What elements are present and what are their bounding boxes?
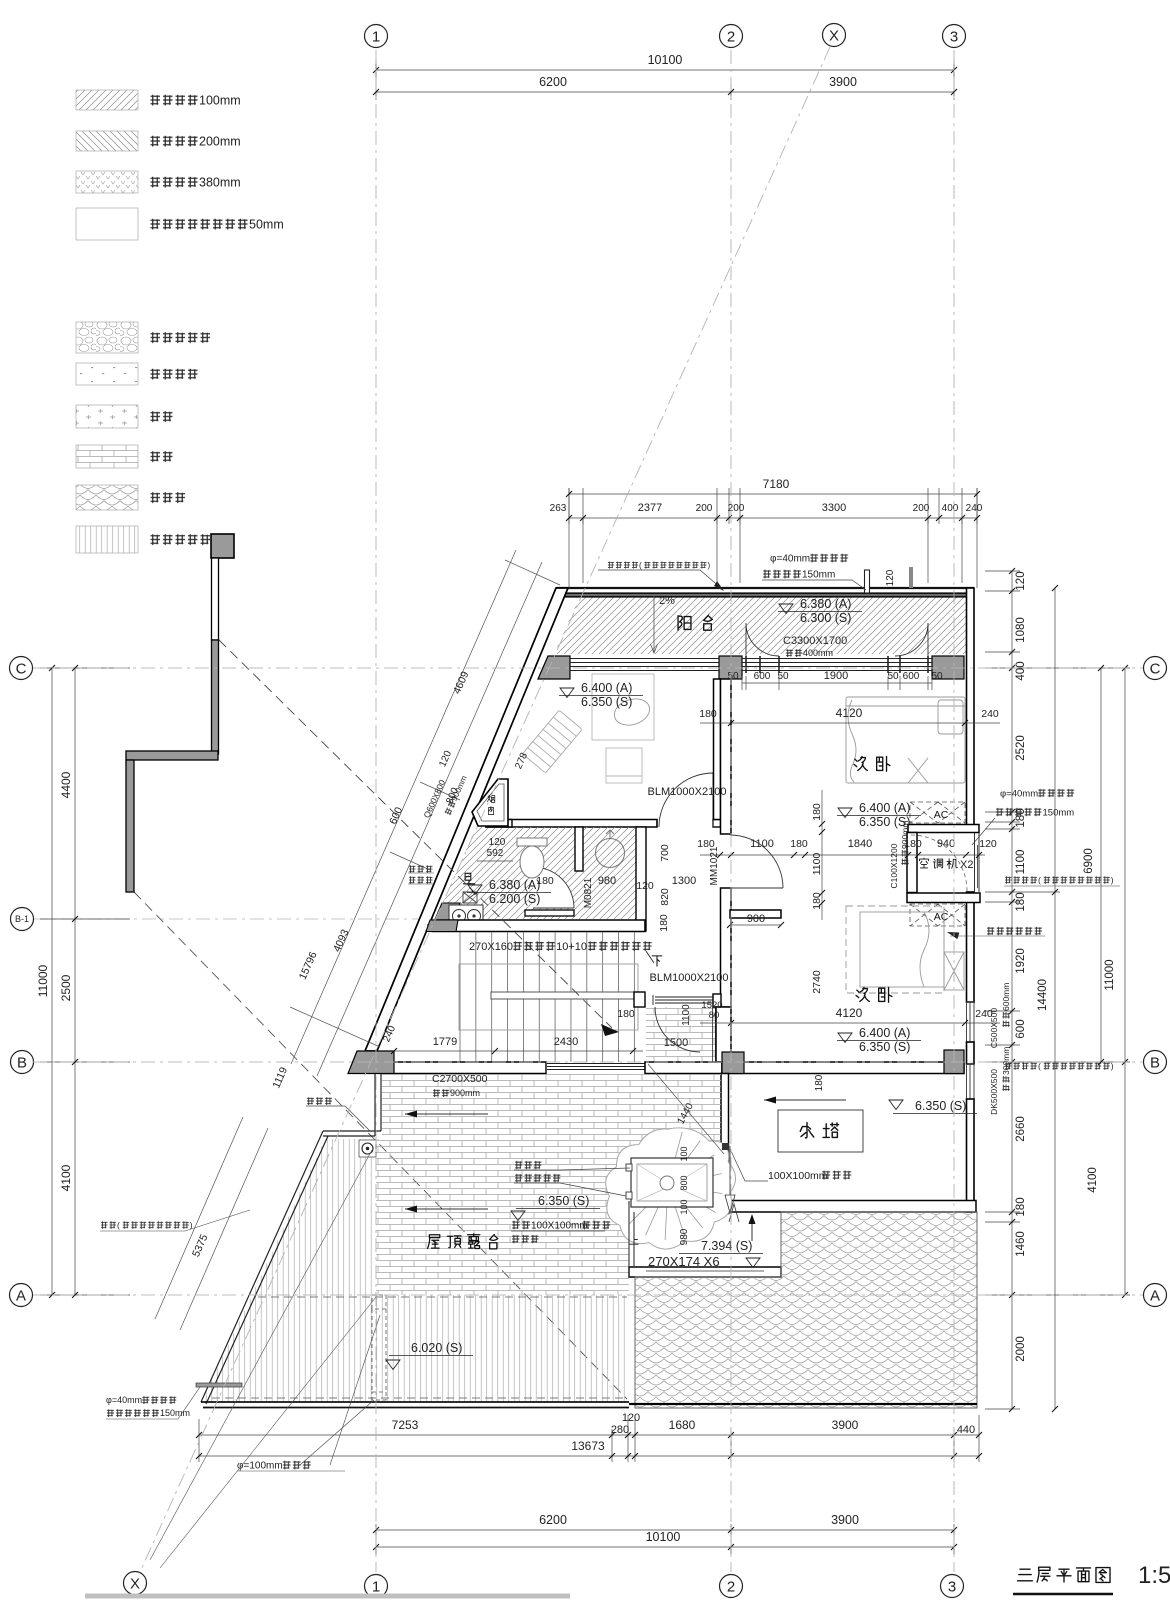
svg-text:3: 3 xyxy=(950,28,958,45)
svg-text:6.400 (A): 6.400 (A) xyxy=(859,801,910,815)
svg-text:6.350 (S): 6.350 (S) xyxy=(538,1194,589,1208)
svg-text:100X100mm: 100X100mm xyxy=(531,1221,588,1232)
svg-text:80: 80 xyxy=(709,1010,720,1021)
svg-text:6.020 (S): 6.020 (S) xyxy=(411,1341,462,1355)
svg-text:180: 180 xyxy=(617,1008,635,1020)
svg-text:100: 100 xyxy=(679,1199,689,1214)
svg-text:6200: 6200 xyxy=(539,1513,567,1527)
svg-text:φ=40mm: φ=40mm xyxy=(1000,788,1038,799)
svg-text:2000: 2000 xyxy=(1015,1336,1027,1362)
svg-text:270X160: 270X160 xyxy=(469,941,513,953)
svg-text:B: B xyxy=(17,1054,27,1071)
svg-text:180: 180 xyxy=(811,892,823,910)
svg-text:50: 50 xyxy=(777,671,789,682)
svg-text:50mm: 50mm xyxy=(249,218,284,232)
svg-text:1100: 1100 xyxy=(1015,850,1027,875)
svg-text:φ=100mm: φ=100mm xyxy=(237,1461,283,1472)
svg-text:DK500X500: DK500X500 xyxy=(989,1069,999,1115)
svg-text:BLM1000X2100: BLM1000X2100 xyxy=(650,972,729,984)
svg-text:1:50: 1:50 xyxy=(1138,1562,1170,1589)
svg-text:10100: 10100 xyxy=(648,53,683,67)
svg-text:6.350 (S): 6.350 (S) xyxy=(581,695,632,709)
svg-text:50: 50 xyxy=(931,671,943,682)
svg-text:150mm: 150mm xyxy=(802,570,835,581)
svg-text:1: 1 xyxy=(372,1578,380,1595)
svg-text:1920: 1920 xyxy=(1015,948,1027,974)
svg-text:MM1021: MM1021 xyxy=(709,846,720,885)
svg-text:263: 263 xyxy=(550,503,567,514)
svg-text:1460: 1460 xyxy=(1015,1231,1027,1257)
svg-text:6.350 (S): 6.350 (S) xyxy=(859,1040,910,1054)
svg-text:φ=40mm: φ=40mm xyxy=(106,1395,142,1405)
svg-text:120: 120 xyxy=(489,837,506,848)
svg-text:A: A xyxy=(1150,1287,1160,1304)
svg-text:2: 2 xyxy=(727,1578,735,1595)
svg-text:1840: 1840 xyxy=(848,838,872,850)
svg-text:900mm: 900mm xyxy=(900,821,910,849)
svg-text:6200: 6200 xyxy=(539,75,567,89)
svg-text:φ=40mm: φ=40mm xyxy=(770,554,810,565)
svg-text:7.394 (S): 7.394 (S) xyxy=(701,1239,752,1253)
svg-text:180: 180 xyxy=(536,875,554,887)
svg-text:BLM1000X2100: BLM1000X2100 xyxy=(648,786,727,798)
svg-text:AC: AC xyxy=(934,809,949,821)
svg-text:10+10: 10+10 xyxy=(556,941,587,953)
svg-text:600: 600 xyxy=(754,671,771,682)
svg-text:100mm: 100mm xyxy=(199,94,241,108)
svg-text:2740: 2740 xyxy=(811,970,823,994)
svg-text:C: C xyxy=(1150,660,1161,677)
svg-text:120: 120 xyxy=(622,1412,640,1424)
svg-text:820: 820 xyxy=(659,888,671,906)
svg-text:(: ( xyxy=(1038,875,1041,885)
svg-text:6.380 (A): 6.380 (A) xyxy=(800,597,851,611)
svg-text:120: 120 xyxy=(979,838,997,850)
svg-text:400: 400 xyxy=(1015,661,1027,680)
svg-text:400mm: 400mm xyxy=(803,648,833,658)
svg-text:4120: 4120 xyxy=(836,706,863,720)
svg-text:50: 50 xyxy=(887,671,899,682)
svg-text:180: 180 xyxy=(814,1074,825,1091)
svg-text:): ) xyxy=(1111,875,1114,885)
svg-text:600mm: 600mm xyxy=(1001,983,1011,1011)
svg-text:120: 120 xyxy=(636,880,654,892)
svg-text:600: 600 xyxy=(903,671,920,682)
svg-text:440: 440 xyxy=(957,1424,975,1436)
svg-text:3300: 3300 xyxy=(822,502,846,514)
svg-text:980: 980 xyxy=(679,1228,690,1245)
svg-text:980: 980 xyxy=(598,875,616,887)
svg-text:7180: 7180 xyxy=(763,477,790,491)
svg-text:4120: 4120 xyxy=(836,1006,863,1020)
svg-text:600: 600 xyxy=(1015,1019,1027,1038)
svg-text:240: 240 xyxy=(966,503,983,514)
svg-text:4100: 4100 xyxy=(1087,1167,1099,1193)
svg-text:): ) xyxy=(1111,1061,1114,1071)
svg-text:B-1: B-1 xyxy=(15,914,29,924)
svg-text:2660: 2660 xyxy=(1015,1116,1027,1142)
svg-text:900mm: 900mm xyxy=(450,1088,480,1098)
svg-text:1680: 1680 xyxy=(669,1418,696,1432)
svg-text:(: ( xyxy=(639,561,642,570)
svg-text:6.380 (A): 6.380 (A) xyxy=(489,878,540,892)
svg-text:700: 700 xyxy=(659,844,671,862)
svg-text:6.400 (A): 6.400 (A) xyxy=(859,1026,910,1040)
svg-text:2500: 2500 xyxy=(59,974,73,1001)
svg-text:1900: 1900 xyxy=(824,670,848,682)
svg-text:3900: 3900 xyxy=(829,75,857,89)
svg-text:10100: 10100 xyxy=(646,1530,681,1544)
svg-text:120: 120 xyxy=(885,569,896,586)
svg-text:11000: 11000 xyxy=(36,964,50,997)
svg-text:13673: 13673 xyxy=(571,1439,605,1453)
svg-text:180: 180 xyxy=(699,708,717,720)
svg-text:280: 280 xyxy=(611,1424,629,1436)
svg-text:A: A xyxy=(16,1287,26,1304)
svg-text:1100: 1100 xyxy=(750,838,774,850)
svg-text:11000: 11000 xyxy=(1104,959,1116,990)
svg-text:B: B xyxy=(1150,1054,1160,1071)
svg-text:7253: 7253 xyxy=(392,1418,419,1432)
svg-text:180: 180 xyxy=(1015,1197,1027,1216)
svg-text:380mm: 380mm xyxy=(199,176,241,190)
svg-text:6900: 6900 xyxy=(1083,848,1095,874)
svg-text:AC: AC xyxy=(934,911,949,923)
svg-text:1500: 1500 xyxy=(664,1037,688,1049)
svg-text:2: 2 xyxy=(727,28,735,45)
svg-text:2520: 2520 xyxy=(1015,735,1027,761)
svg-text:2377: 2377 xyxy=(638,502,662,514)
svg-text:C2700X500: C2700X500 xyxy=(432,1073,488,1085)
svg-text:X2: X2 xyxy=(960,859,973,871)
svg-text:270X174 X6: 270X174 X6 xyxy=(648,1254,720,1269)
svg-text:150mm: 150mm xyxy=(1043,807,1075,818)
svg-text:6.200 (S): 6.200 (S) xyxy=(489,892,540,906)
svg-text:(: ( xyxy=(1038,1061,1041,1071)
svg-text:(: ( xyxy=(117,1220,120,1230)
svg-text:1100: 1100 xyxy=(681,1004,692,1026)
svg-text:6.400 (A): 6.400 (A) xyxy=(581,681,632,695)
svg-text:1: 1 xyxy=(372,28,380,45)
svg-text:100X100mm: 100X100mm xyxy=(768,1170,828,1182)
svg-text:180: 180 xyxy=(1015,892,1027,911)
svg-text:50: 50 xyxy=(727,671,739,682)
svg-text:120: 120 xyxy=(1015,571,1027,590)
svg-text:800: 800 xyxy=(679,1175,689,1190)
svg-text:200mm: 200mm xyxy=(199,135,241,149)
svg-text:6.300 (S): 6.300 (S) xyxy=(800,611,851,625)
svg-text:200: 200 xyxy=(696,503,713,514)
svg-text:200: 200 xyxy=(728,503,745,514)
svg-text:X: X xyxy=(829,27,839,44)
svg-text:4400: 4400 xyxy=(59,771,73,798)
svg-text:C100X1200: C100X1200 xyxy=(889,843,899,888)
svg-text:6.350 (S): 6.350 (S) xyxy=(915,1099,966,1113)
svg-text:150mm: 150mm xyxy=(160,1408,190,1418)
svg-text:2430: 2430 xyxy=(554,1036,578,1048)
svg-text:940: 940 xyxy=(937,838,955,850)
svg-text:2%: 2% xyxy=(659,595,675,607)
svg-text:3900: 3900 xyxy=(832,1418,859,1432)
svg-text:4100: 4100 xyxy=(59,1164,73,1191)
svg-text:200: 200 xyxy=(913,503,930,514)
svg-text:400: 400 xyxy=(942,503,959,514)
svg-text:180: 180 xyxy=(811,803,823,821)
svg-text:): ) xyxy=(707,561,710,570)
svg-text:1080: 1080 xyxy=(1015,617,1027,643)
svg-text:240: 240 xyxy=(981,708,999,720)
svg-text:100: 100 xyxy=(679,1146,689,1161)
svg-text:3: 3 xyxy=(948,1578,956,1595)
svg-text:C: C xyxy=(16,660,27,677)
svg-text:1300: 1300 xyxy=(672,875,696,887)
svg-text:1100: 1100 xyxy=(811,853,823,876)
svg-text:300mm: 300mm xyxy=(1001,1047,1011,1075)
svg-text:180: 180 xyxy=(658,914,670,932)
svg-text:C3300X1700: C3300X1700 xyxy=(783,635,847,647)
svg-text:C500X500: C500X500 xyxy=(989,1008,999,1048)
svg-text:3900: 3900 xyxy=(831,1513,859,1527)
svg-text:180: 180 xyxy=(790,838,808,850)
svg-text:592: 592 xyxy=(487,848,504,859)
svg-text:M0821: M0821 xyxy=(583,877,594,908)
svg-text:1779: 1779 xyxy=(433,1036,457,1048)
svg-text:X: X xyxy=(130,1575,140,1592)
svg-text:900: 900 xyxy=(747,913,765,925)
svg-text:14400: 14400 xyxy=(1037,979,1049,1011)
